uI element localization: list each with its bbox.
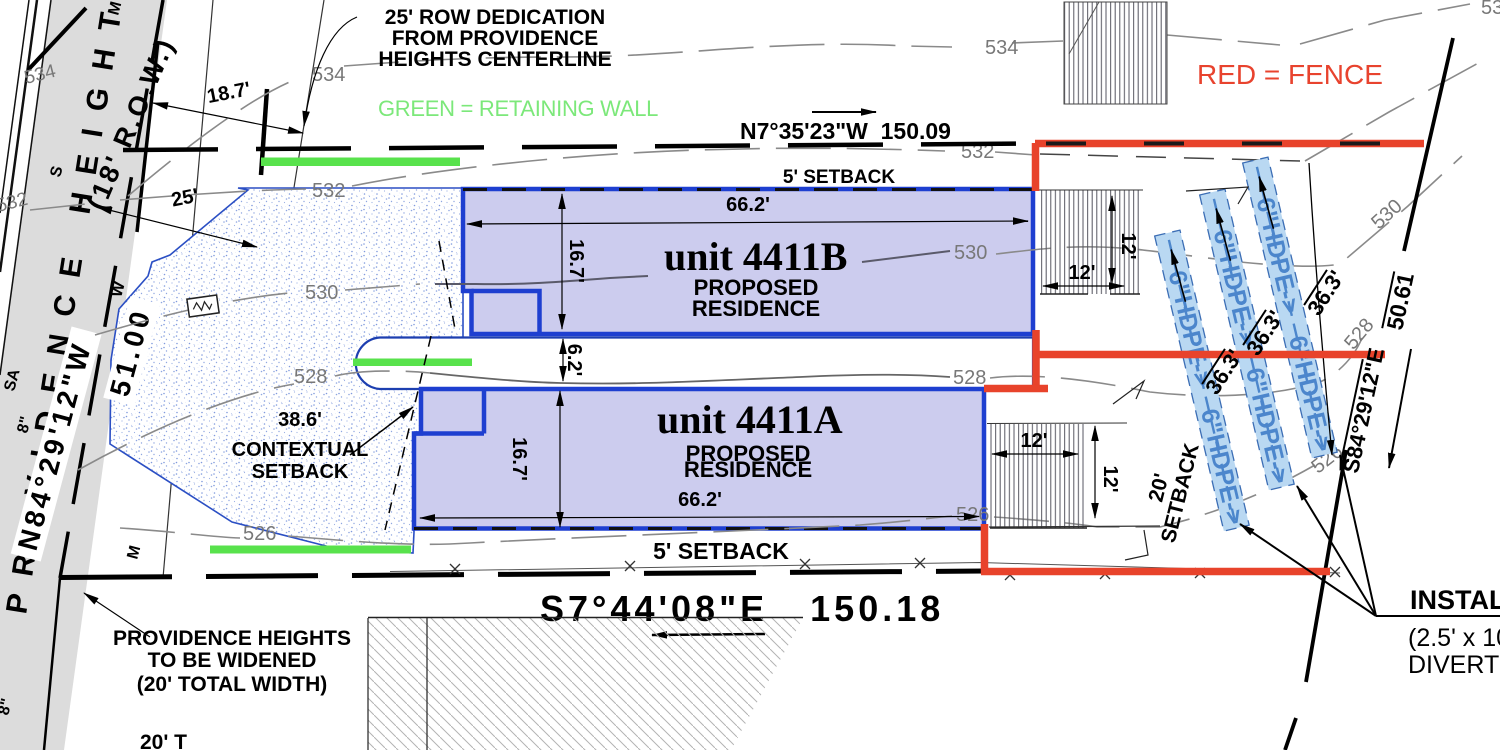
svg-text:532: 532 [312, 180, 345, 202]
svg-text:12': 12' [1099, 465, 1121, 492]
svg-text:FROM PROVIDENCE: FROM PROVIDENCE [392, 27, 599, 50]
svg-text:38.6': 38.6' [278, 409, 322, 431]
svg-text:534: 534 [985, 37, 1018, 59]
svg-text:5' SETBACK: 5' SETBACK [783, 167, 895, 188]
svg-text:12': 12' [1117, 232, 1139, 259]
svg-text:HEIGHTS CENTERLINE: HEIGHTS CENTERLINE [378, 48, 611, 71]
svg-text:530: 530 [305, 282, 338, 304]
svg-text:GREEN = RETAINING WALL: GREEN = RETAINING WALL [378, 96, 658, 121]
svg-text:526: 526 [956, 504, 989, 526]
svg-text:(2.5' x 10' x 1: (2.5' x 10' x 1 [1408, 624, 1500, 652]
svg-text:528: 528 [953, 367, 986, 389]
svg-text:unit 4411A: unit 4411A [657, 397, 843, 442]
svg-text:PROVIDENCE HEIGHTS: PROVIDENCE HEIGHTS [113, 627, 351, 650]
svg-text:526: 526 [243, 523, 276, 545]
svg-text:SETBACK: SETBACK [252, 461, 349, 483]
svg-text:530: 530 [954, 242, 987, 264]
svg-text:(20' TOTAL WIDTH): (20' TOTAL WIDTH) [137, 673, 328, 696]
svg-text:12': 12' [1020, 430, 1047, 452]
svg-text:528: 528 [294, 366, 327, 388]
svg-text:66.2': 66.2' [726, 194, 770, 216]
svg-text:unit 4411B: unit 4411B [664, 234, 847, 279]
svg-text:16.7': 16.7' [508, 437, 530, 481]
svg-text:N7°35'23"W 150.09: N7°35'23"W 150.09 [740, 118, 951, 144]
svg-text:25' ROW DEDICATION: 25' ROW DEDICATION [385, 6, 605, 29]
svg-text:DIVERT AN: DIVERT AN [1408, 651, 1500, 679]
svg-text:534: 534 [312, 64, 345, 86]
svg-text:53: 53 [1481, 0, 1500, 19]
svg-text:RED = FENCE: RED = FENCE [1197, 59, 1383, 90]
svg-text:6.2': 6.2' [563, 344, 585, 377]
svg-text:TO BE WIDENED: TO BE WIDENED [148, 649, 317, 672]
svg-text:20' T: 20' T [140, 731, 187, 750]
svg-text:INSTALL GR: INSTALL GR [1410, 585, 1500, 615]
svg-text:16.7': 16.7' [565, 239, 587, 283]
svg-text:66.2': 66.2' [678, 489, 722, 511]
svg-text:5' SETBACK: 5' SETBACK [653, 538, 789, 564]
svg-text:12': 12' [1068, 262, 1095, 284]
svg-text:RESIDENCE: RESIDENCE [684, 457, 812, 482]
svg-text:RESIDENCE: RESIDENCE [692, 296, 820, 321]
svg-text:CONTEXTUAL: CONTEXTUAL [232, 439, 369, 461]
